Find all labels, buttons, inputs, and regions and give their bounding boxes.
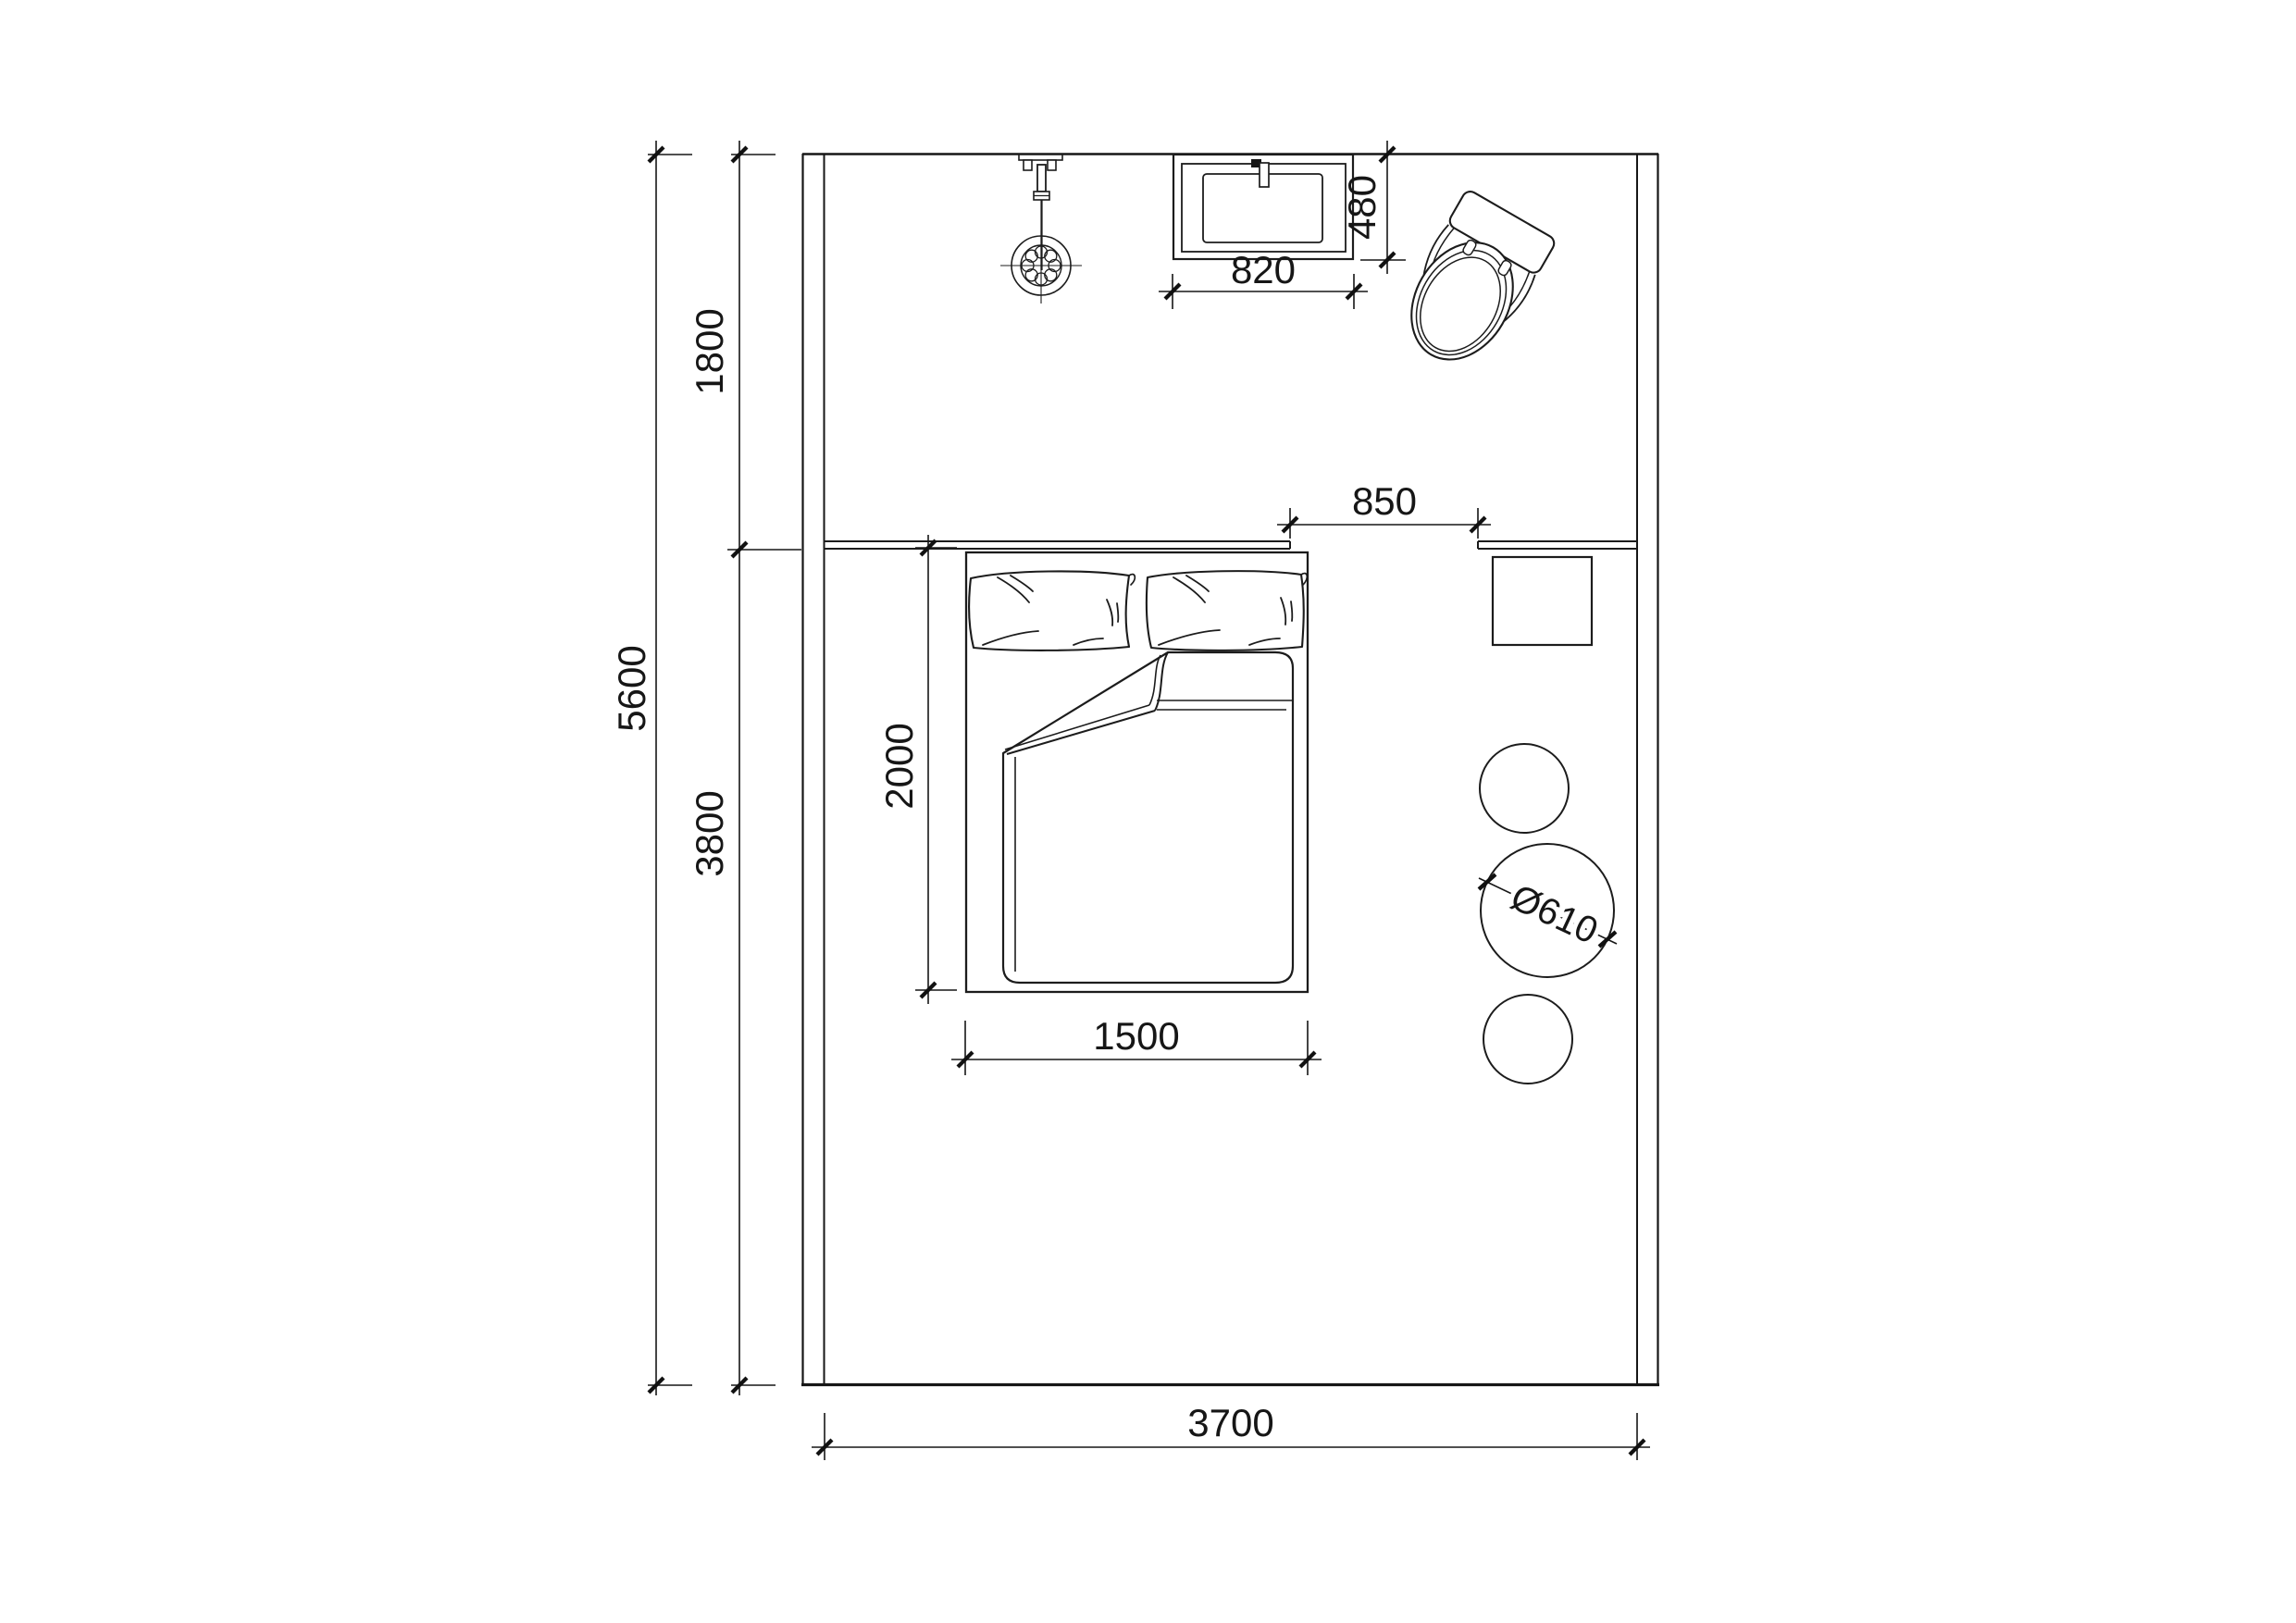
dim-room-height: 5600 [610, 141, 692, 1395]
bed [966, 552, 1308, 992]
dim-label-480: 480 [1340, 175, 1384, 240]
dim-bed-length: 2000 [877, 535, 957, 1004]
dim-label-3800: 3800 [688, 790, 731, 876]
floor-plan-canvas: 5600 1800 3800 3700 820 480 [0, 0, 2296, 1623]
shower-head [1000, 155, 1082, 304]
pillow-left [969, 571, 1135, 650]
dim-label-850: 850 [1352, 479, 1417, 523]
dim-label-2000: 2000 [877, 723, 921, 809]
stool-bottom [1483, 995, 1572, 1084]
stool-top [1480, 744, 1569, 833]
dim-bed-width: 1500 [951, 1014, 1322, 1075]
dim-label-1800: 1800 [688, 308, 731, 394]
dim-label-1500: 1500 [1093, 1014, 1179, 1058]
dim-label-3700: 3700 [1187, 1401, 1273, 1444]
dim-room-width: 3700 [812, 1401, 1650, 1460]
dim-zone-depths: 1800 3800 [688, 141, 801, 1395]
sink [1173, 155, 1353, 259]
nightstand [1493, 557, 1592, 645]
toilet [1385, 188, 1558, 380]
dim-passage: 850 [1277, 479, 1491, 539]
dim-label-5600: 5600 [610, 645, 653, 731]
dim-label-820: 820 [1231, 248, 1296, 291]
pillow-right [1147, 571, 1308, 650]
